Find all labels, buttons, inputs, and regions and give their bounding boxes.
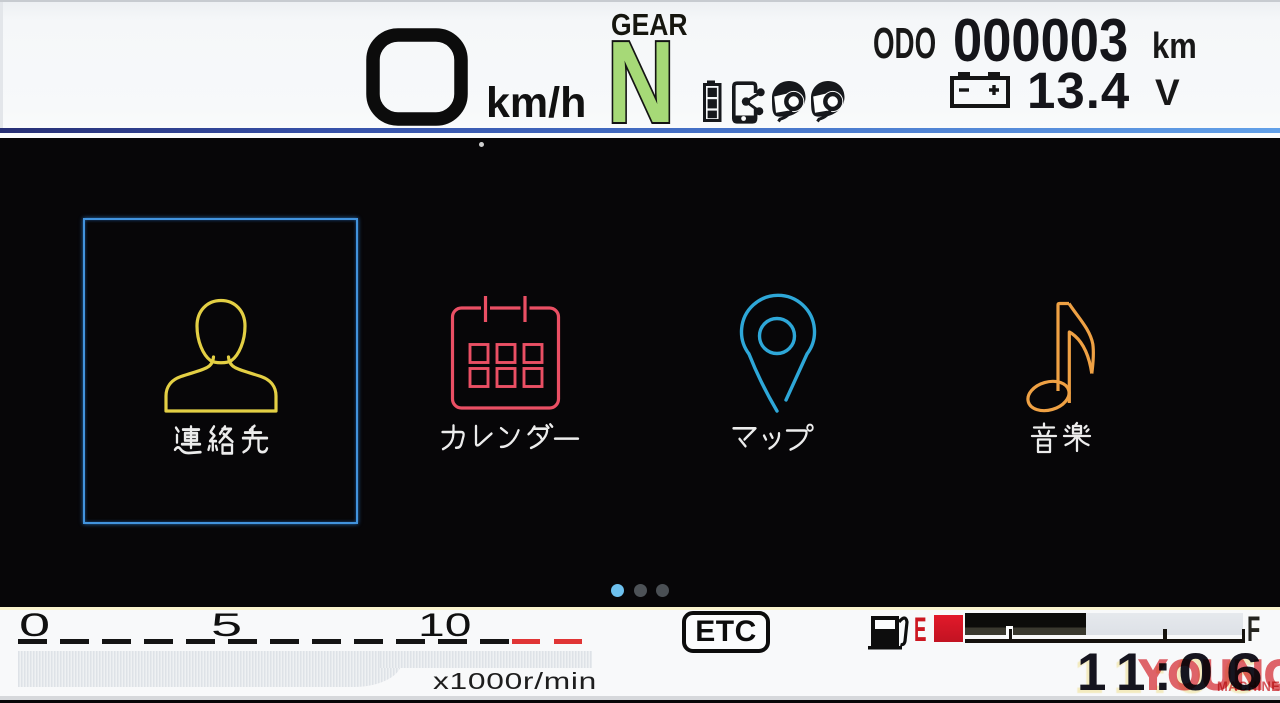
svg-text:N: N xyxy=(607,28,675,128)
